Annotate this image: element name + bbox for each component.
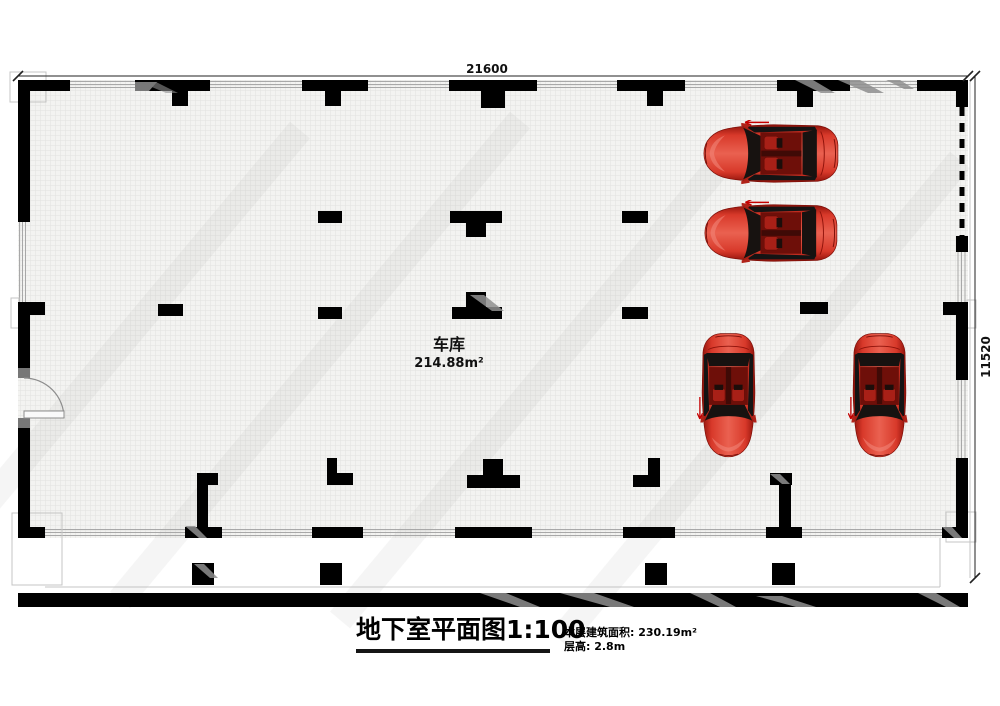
car-top-view-4 (848, 334, 907, 457)
side-dimension-label: 11520 (979, 336, 993, 378)
room-area-label: 214.88m² (414, 356, 483, 371)
plan-meta: 本层建筑面积: 230.19m² 层高: 2.8m (564, 626, 697, 654)
room-label: 车库 (433, 335, 465, 354)
plan-title: 地下室平面图1:100 (356, 610, 586, 646)
car-top-view-3 (697, 334, 756, 457)
car-top-view-2 (705, 200, 837, 264)
door-jamb-bottom (18, 418, 30, 428)
top-dimension-label: 21600 (466, 62, 508, 76)
car-top-view-1 (704, 120, 838, 185)
door-leaf (24, 411, 64, 418)
door-jamb-top (18, 368, 30, 378)
floorplan-drawing: 21600 11520 车库 214.88m² (0, 0, 1000, 706)
floor-height-line: 层高: 2.8m (564, 640, 697, 654)
title-underline (356, 649, 550, 653)
floorplan-page: 21600 11520 车库 214.88m² 地下室平面图1:100 本层建筑… (0, 0, 1000, 706)
building-area-line: 本层建筑面积: 230.19m² (564, 626, 697, 640)
